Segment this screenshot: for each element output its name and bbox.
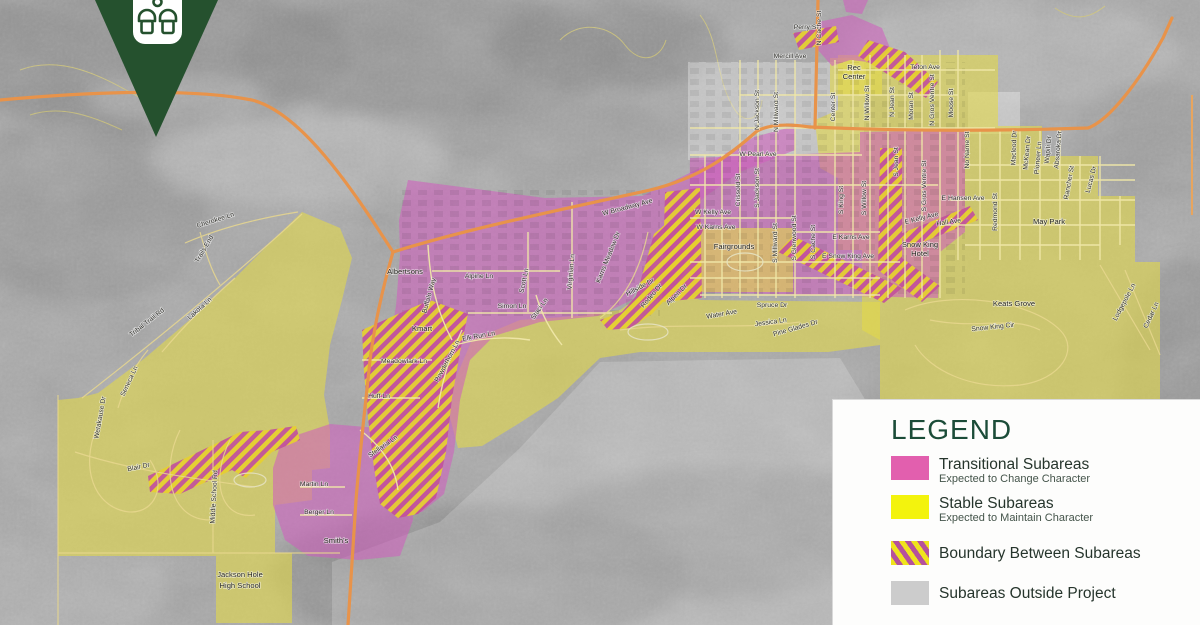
- street-label: Macleod Dr: [1010, 130, 1018, 166]
- place-label: May Park: [1033, 217, 1065, 226]
- street-label: N Jean St: [889, 87, 896, 117]
- place-label: Snow King: [902, 240, 938, 249]
- legend-sublabel: Expected to Change Character: [939, 473, 1090, 486]
- street-label: W Pearl Ave: [739, 151, 776, 158]
- street-label: S Willow St: [861, 181, 868, 215]
- street-label: Mercill Ave: [774, 53, 807, 60]
- place-label: High School: [220, 581, 261, 590]
- street-label: Moose St: [948, 89, 955, 118]
- street-label: Simon Ln: [498, 303, 527, 310]
- place-label: Jackson Hole: [217, 570, 263, 579]
- street-label: S Jean St: [893, 147, 900, 177]
- street-label: N Gros Ventre St: [929, 74, 936, 125]
- street-label: S Jackson St: [754, 168, 761, 208]
- street-label: Perry St: [794, 24, 819, 31]
- street-label: Teton Ave: [910, 64, 940, 71]
- street-label: Moran St: [908, 92, 915, 120]
- place-label: Albertsons: [387, 267, 423, 276]
- legend-item-outside: Subareas Outside Project: [891, 581, 1200, 605]
- street-label: Redmond St: [992, 193, 999, 231]
- transitional-swatch: [891, 456, 929, 480]
- street-label: N Jackson St: [754, 90, 761, 130]
- legend-item-boundary: Boundary Between Subareas: [891, 541, 1200, 565]
- street-label: Center St: [830, 93, 837, 122]
- street-label: Crissold St: [735, 173, 742, 206]
- map-screenshot: Perry StN Cache StMercill AveRecCenterTe…: [0, 0, 1200, 625]
- boundary-swatch: [891, 541, 929, 565]
- street-label: E Hansen Ave: [942, 195, 985, 202]
- street-label: E Karns Ave: [832, 234, 869, 241]
- place-label: Rec: [847, 63, 861, 72]
- street-label: S Gros Ventre St: [921, 160, 928, 211]
- place-label: Fairgrounds: [714, 242, 755, 251]
- stable-swatch: [891, 495, 929, 519]
- street-label: Huff Ln: [368, 393, 390, 400]
- place-label: Kmart: [412, 324, 433, 333]
- legend-title: LEGEND: [891, 414, 1200, 446]
- street-label: S Glenwood St: [791, 215, 798, 260]
- street-label: Meadowlark Ln: [381, 358, 427, 365]
- legend-item-transitional: Transitional Subareas Expected to Change…: [891, 456, 1200, 486]
- place-label: Smith's: [324, 536, 349, 545]
- street-label: S Millward St: [772, 223, 779, 263]
- legend-label: Stable Subareas: [939, 495, 1093, 512]
- outside-swatch: [891, 581, 929, 605]
- street-label: N Willow St: [864, 86, 871, 121]
- street-label: N Millward St: [773, 92, 780, 132]
- street-label: W Karns Ave: [696, 224, 735, 231]
- legend-panel: LEGEND Transitional Subareas Expected to…: [832, 399, 1200, 625]
- street-label: S King St: [838, 186, 845, 214]
- legend-label: Transitional Subareas: [939, 456, 1090, 473]
- street-label: Berger Ln: [304, 509, 334, 516]
- legend-label: Subareas Outside Project: [939, 585, 1116, 602]
- place-label: Hotel: [911, 249, 929, 258]
- street-label: S Cache St: [810, 225, 817, 259]
- publisher-logo: [90, 0, 225, 145]
- street-label: Alpine Ln: [465, 273, 494, 280]
- legend-sublabel: Expected to Maintain Character: [939, 512, 1093, 525]
- street-label: Spruce Dr: [757, 302, 788, 309]
- street-label: E Snow King Ave: [822, 253, 874, 260]
- street-label: No Name St: [964, 131, 971, 168]
- street-label: Martin Ln: [300, 481, 329, 488]
- legend-item-stable: Stable Subareas Expected to Maintain Cha…: [891, 495, 1200, 525]
- legend-label: Boundary Between Subareas: [939, 545, 1141, 562]
- place-label: Center: [843, 72, 866, 81]
- place-label: Keats Grove: [993, 299, 1035, 308]
- street-label: W Kelly Ave: [695, 209, 731, 216]
- street-label: N Cache St: [816, 11, 823, 46]
